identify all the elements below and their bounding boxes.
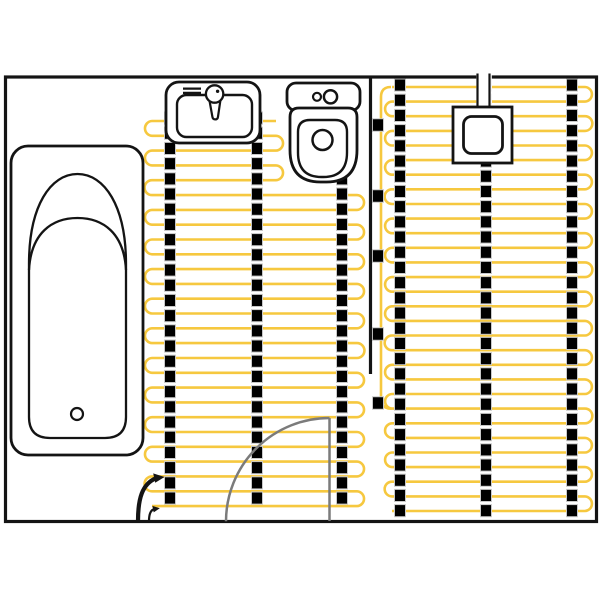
strip-dash [165,386,176,398]
strip-dash [395,322,406,334]
strip-dash [337,401,348,413]
strip-dash [567,231,578,243]
strip-dash [481,489,492,501]
strip-dash [567,155,578,167]
floor-plan-canvas [0,0,600,600]
strip-dash [567,474,578,486]
strip-dash [567,444,578,456]
strip-dash [481,337,492,349]
strip-dash [252,234,263,246]
strip-dash [481,307,492,319]
strip-dash [165,142,176,154]
strip-dash [395,307,406,319]
strip-dash [395,277,406,289]
strip-dash [395,429,406,441]
strip-dash [252,142,263,154]
strip-dash [165,279,176,291]
strip-dash [481,246,492,258]
strip-dash [165,355,176,367]
strip-dash [395,231,406,243]
strip-dash [337,188,348,200]
strip-dash [567,277,578,289]
strip-dash [165,264,176,276]
strip-dash [165,294,176,306]
strip-dash [395,489,406,501]
strip-dash [567,109,578,121]
strip-dash [252,310,263,322]
cable-clip-3 [373,250,384,263]
strip-dash [481,444,492,456]
cable-clip-5 [373,397,384,410]
strip-dash [567,505,578,517]
strip-dash [481,429,492,441]
strip-dash [395,398,406,410]
strip-dash [567,322,578,334]
strip-dash [567,383,578,395]
strip-dash [337,370,348,382]
strip-dash [165,492,176,504]
strip-dash [395,246,406,258]
bathtub-inner [29,174,126,438]
strip-dash [165,158,176,170]
strip-dash [337,264,348,276]
strip-dash [252,249,263,261]
strip-dash [165,401,176,413]
strip-dash [395,474,406,486]
strip-dash [252,173,263,185]
strip-dash [252,492,263,504]
strip-dash [395,170,406,182]
strip-dash [481,322,492,334]
strip-dash [481,398,492,410]
strip-dash [567,246,578,258]
strip-dash [337,249,348,261]
strip-dash [567,125,578,137]
strip-dash [481,474,492,486]
strip-dash [337,203,348,215]
strip-dash [395,292,406,304]
strip-dash [252,477,263,489]
strip-dash [337,492,348,504]
toilet-flush-hole [313,130,333,150]
strip-dash [567,489,578,501]
strip-dash [481,185,492,197]
strip-dash [252,416,263,428]
strip-dash [567,353,578,365]
strip-dash [337,386,348,398]
strip-dash [165,234,176,246]
toilet-button-large [324,90,337,103]
strip-dash [567,170,578,182]
strip-dash [165,416,176,428]
strip-dash [567,79,578,91]
strip-dash [337,234,348,246]
strip-dash [337,279,348,291]
strip-dash [567,261,578,273]
strip-dash [252,340,263,352]
strip-dash [337,416,348,428]
strip-dash [252,431,263,443]
cable-clip-2 [373,190,384,203]
strip-dash [481,413,492,425]
strip-dash [395,459,406,471]
bathroom-heating-floor-plan [0,0,600,600]
strip-dash [165,446,176,458]
strip-dash [481,353,492,365]
strip-dash [337,446,348,458]
strip-dash [481,505,492,517]
strip-dash [252,370,263,382]
strip-dash [395,353,406,365]
strip-dash [567,337,578,349]
strip-dash [252,218,263,230]
strip-dash [337,477,348,489]
strip-dash [481,459,492,471]
strip-dash [252,264,263,276]
strip-dash [165,203,176,215]
strip-dash [252,158,263,170]
strip-dash [395,383,406,395]
fixing-strip-4 [395,79,406,517]
strip-dash [567,368,578,380]
strip-dash [567,140,578,152]
strip-dash [337,310,348,322]
strip-dash [252,325,263,337]
strip-dash [337,431,348,443]
toilet-button-small [313,93,321,101]
strip-dash [337,325,348,337]
strip-dash [567,429,578,441]
strip-dash [567,216,578,228]
strip-dash [395,185,406,197]
strip-dash [395,155,406,167]
strip-dash [252,279,263,291]
strip-dash [481,261,492,273]
strip-dash [252,386,263,398]
strip-dash [481,368,492,380]
strip-dash [395,505,406,517]
faucet-head [206,85,223,102]
bathtub-drain [71,408,83,420]
strip-dash [395,444,406,456]
strip-dash [481,277,492,289]
strip-dash [337,218,348,230]
strip-dash [395,201,406,213]
strip-dash [165,218,176,230]
strip-dash [165,370,176,382]
strip-dash [567,413,578,425]
strip-dash [165,477,176,489]
faucet-dot [216,90,219,93]
strip-dash [481,231,492,243]
strip-dash [337,462,348,474]
strip-dash [567,398,578,410]
strip-dash [481,292,492,304]
strip-dash [165,173,176,185]
strip-dash [252,203,263,215]
strip-dash [252,401,263,413]
strip-dash [252,462,263,474]
strip-dash [395,216,406,228]
strip-dash [165,188,176,200]
strip-dash [567,201,578,213]
strip-dash [252,188,263,200]
strip-dash [567,459,578,471]
strip-dash [337,355,348,367]
strip-dash [395,125,406,137]
fixing-strip-6 [567,79,578,517]
strip-dash [567,94,578,106]
strip-dash [337,340,348,352]
strip-dash [395,79,406,91]
strip-dash [567,307,578,319]
strip-dash [395,109,406,121]
strip-dash [165,325,176,337]
cable-clip-1 [373,119,384,132]
cable-clip-4 [373,328,384,341]
junction-box-inner [464,117,503,154]
strip-dash [395,368,406,380]
strip-dash [395,413,406,425]
strip-dash [165,249,176,261]
strip-dash [567,185,578,197]
strip-dash [395,140,406,152]
strip-dash [395,337,406,349]
strip-dash [481,216,492,228]
strip-dash [395,261,406,273]
strip-dash [165,310,176,322]
strip-dash [252,294,263,306]
strip-dash [165,462,176,474]
strip-dash [165,340,176,352]
strip-dash [165,431,176,443]
strip-dash [481,170,492,182]
strip-dash [337,294,348,306]
strip-dash [252,355,263,367]
strip-dash [481,201,492,213]
strip-dash [481,383,492,395]
strip-dash [395,94,406,106]
strip-dash [567,292,578,304]
